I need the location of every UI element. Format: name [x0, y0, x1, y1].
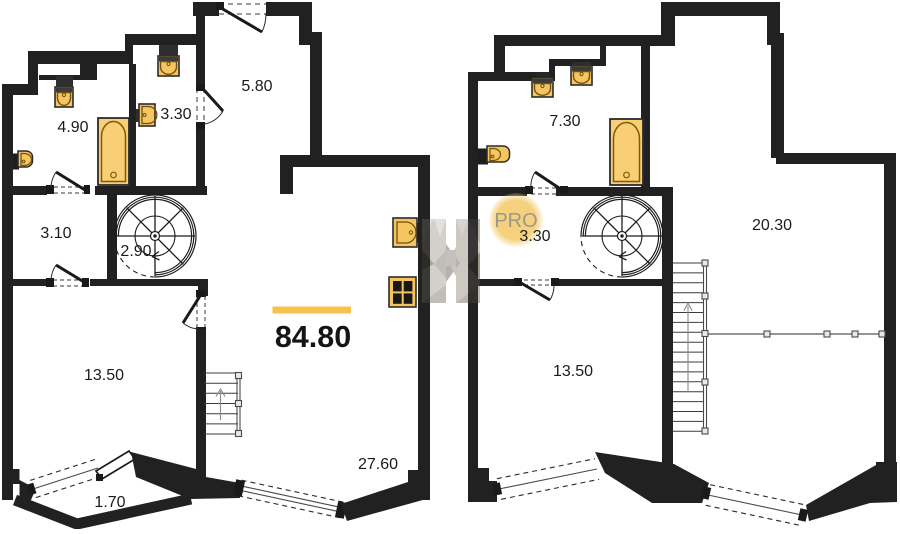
svg-text:1.70: 1.70	[94, 494, 125, 511]
svg-text:3.30: 3.30	[160, 106, 191, 123]
svg-text:7.30: 7.30	[549, 113, 580, 130]
svg-text:4.90: 4.90	[57, 119, 88, 136]
svg-text:13.50: 13.50	[84, 367, 124, 384]
svg-text:13.50: 13.50	[553, 363, 593, 380]
svg-text:84.80: 84.80	[275, 320, 351, 354]
svg-text:5.80: 5.80	[241, 78, 272, 95]
svg-text:3.10: 3.10	[40, 225, 71, 242]
svg-text:27.60: 27.60	[358, 456, 398, 473]
svg-text:3.30: 3.30	[519, 228, 550, 245]
svg-text:2.90: 2.90	[120, 243, 151, 260]
svg-text:20.30: 20.30	[752, 217, 792, 234]
